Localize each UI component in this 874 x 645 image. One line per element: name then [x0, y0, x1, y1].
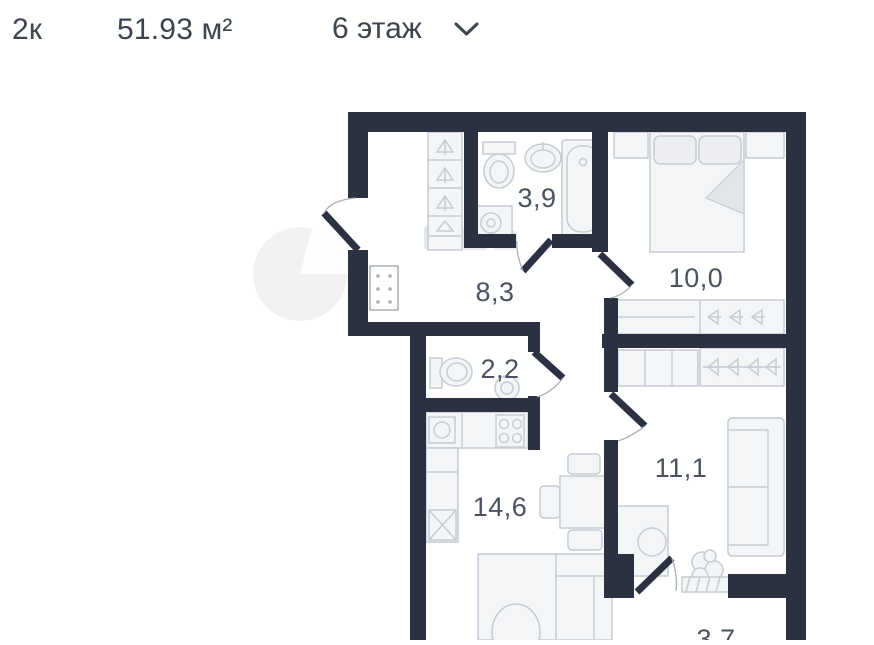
room-open-wardrobe-fixture: [700, 348, 784, 386]
floor-dropdown[interactable]: 6 этаж: [330, 8, 481, 50]
bed-fixture: [614, 132, 784, 252]
room-cabinets-fixture: [618, 350, 698, 386]
bedroom-wardrobe-fixture: [612, 300, 784, 334]
chevron-down-icon: [454, 22, 479, 37]
bedroom-door: [600, 254, 632, 298]
dining-table-fixture: [540, 454, 606, 550]
room-area-room: 11,1: [655, 453, 708, 483]
toilet-fixture: [483, 142, 515, 188]
room-area-balcony: 3,7: [696, 624, 735, 640]
room-door: [611, 394, 645, 441]
total-area-label: 51.93 м²: [117, 13, 233, 47]
floor-dropdown-label: 6 этаж: [332, 12, 422, 46]
hallway-wardrobe-fixture: [428, 132, 462, 250]
rooms-count-label: 2к: [12, 13, 42, 47]
electrical-panel-fixture: [370, 266, 398, 310]
wc-toilet-fixture: [430, 358, 472, 388]
room-sofa-fixture: [728, 418, 784, 556]
kitchen-counter-fixture: [426, 412, 528, 542]
floor-plan: 3,9 8,3 10,0 2,2 14,6 11,1 3,7: [0, 0, 874, 640]
radiator-fixture: [682, 577, 730, 592]
room-area-hallway: 8,3: [475, 277, 514, 307]
wc-door: [534, 352, 563, 397]
room-area-bedroom: 10,0: [669, 263, 724, 293]
listing-header: 2к 51.93 м² 6 этаж: [0, 0, 874, 70]
bathroom-sink-fixture: [525, 142, 561, 172]
bathroom-door: [517, 240, 551, 271]
living-sofa-fixture: [478, 554, 612, 640]
room-area-kitchen: 14,6: [473, 492, 528, 522]
room-area-bathroom: 3,9: [517, 183, 556, 213]
room-area-wc: 2,2: [480, 354, 519, 384]
